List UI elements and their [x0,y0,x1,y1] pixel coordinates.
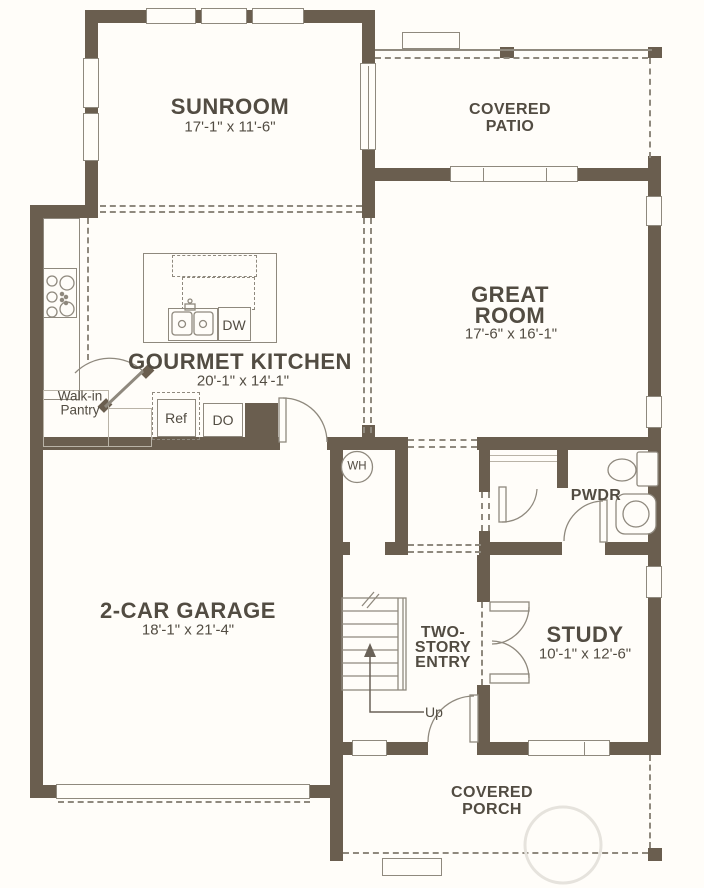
patio-edge-dashed-top [375,57,648,59]
covered-patio-label-2: PATIO [486,119,535,135]
wall-garage-right [330,450,343,861]
study-double-doors [490,602,529,683]
wall-whcloset-right [395,440,408,543]
great-room-label-2: ROOM [475,305,545,327]
sunroom-window-left-2 [83,113,99,161]
island-counter-dashed-2 [182,277,255,310]
garage-door [56,784,310,799]
entry-label-3: ENTRY [415,655,471,671]
kitchen-dims: 20'-1" x 14'-1" [197,374,289,389]
porch-post-se [648,848,662,861]
sunroom-open-boundary-1 [100,205,362,207]
kitchen-garage-door [279,398,327,442]
wall-study-left-upper [477,555,490,602]
wall-closet-left-upper [479,448,490,492]
water-heater-label: WH [347,461,366,473]
sunroom-window-top-2 [201,8,247,24]
garage-label: 2-CAR GARAGE [100,600,276,622]
patio-post-se [648,156,661,186]
closet-opening-2 [488,492,490,531]
porch-label-2: PORCH [462,802,522,818]
wall-entry-bottom-west [330,742,352,755]
sunroom-window-top-3 [252,8,304,24]
sunroom-dims: 17'-1" x 11'-6" [184,120,275,135]
study-window-south [528,740,610,756]
sunroom-label: SUNROOM [171,96,289,118]
slider-mullion [368,66,369,149]
entry-window-south [352,740,387,756]
kitchen-greatroom-divider-2 [370,218,372,433]
double-oven-label: DO [213,413,234,427]
kitchen-cabinet-dashed [87,218,89,360]
powder-door [564,500,607,542]
closet-shelf-line-1 [490,455,557,456]
hall-opening-north-1 [408,439,477,441]
patio-roof-edge [375,49,652,51]
powder-label: PWDR [571,488,621,504]
pantry-label-1: Walk-in [58,389,103,403]
hall-opening-south-2 [408,551,481,553]
porch-edge-dashed-right [649,755,651,848]
wall-outer-left [30,205,43,798]
sunroom-window-left-1 [83,58,99,108]
kitchen-sink-unit [168,308,218,341]
window-mullion [584,742,585,755]
pantry-label-2: Pantry [60,403,99,417]
garage-door-dashed [58,801,310,803]
study-window-east [646,566,662,598]
wall-greatroom-bottom [477,437,661,450]
up-label: Up [425,705,443,719]
closet-door [499,487,537,522]
refrigerator-label: Ref [165,411,187,425]
closet-shelf-line-2 [490,461,557,462]
study-dims: 10'-1" x 12'-6" [539,647,631,662]
wall-closet-powder-divider [557,440,568,488]
sunroom-slider-door [360,63,376,150]
patio-edge-dashed-right [649,58,651,158]
dishwasher-label: DW [222,318,245,332]
greatroom-window-north [450,166,578,182]
wall-study-top-west [479,542,562,555]
kitchen-greatroom-divider-1 [363,218,365,433]
wall-entry-top-west [330,542,350,555]
hall-opening-north-2 [408,446,477,448]
wall-entry-bottom-mid [387,742,428,755]
wall-study-bottom-west [477,742,528,755]
sunroom-window-top-1 [146,8,196,24]
patio-structure-bump [402,32,460,49]
floor-plan-canvas: SUNROOM 17'-1" x 11'-6" COVERED PATIO GR… [0,0,704,888]
cooktop [43,268,77,318]
closet-opening-1 [481,492,483,531]
watermark-circle [525,807,601,883]
staircase [342,592,406,690]
greatroom-window-east-1 [646,196,662,226]
window-mullion [546,168,547,181]
window-mullion [483,168,484,181]
wall-entry-top-east [385,542,408,555]
covered-patio-label-1: COVERED [469,102,551,118]
garage-dims: 18'-1" x 21'-4" [142,623,234,638]
study-label: STUDY [546,624,623,646]
study-doors-opening [481,602,483,685]
porch-step [382,858,442,876]
great-room-dims: 17'-6" x 16'-1" [465,327,557,342]
sunroom-open-boundary-2 [100,211,362,213]
greatroom-window-east-2 [646,396,662,428]
hall-opening-south-1 [408,544,481,546]
porch-edge-dashed-bottom [343,852,648,854]
island-counter-dashed-1 [172,255,257,277]
porch-label-1: COVERED [451,785,533,801]
kitchen-counter-mid [108,408,152,447]
wall-kitchen-chase [245,403,278,443]
kitchen-label: GOURMET KITCHEN [128,351,352,373]
wall-outer-right [648,168,661,755]
